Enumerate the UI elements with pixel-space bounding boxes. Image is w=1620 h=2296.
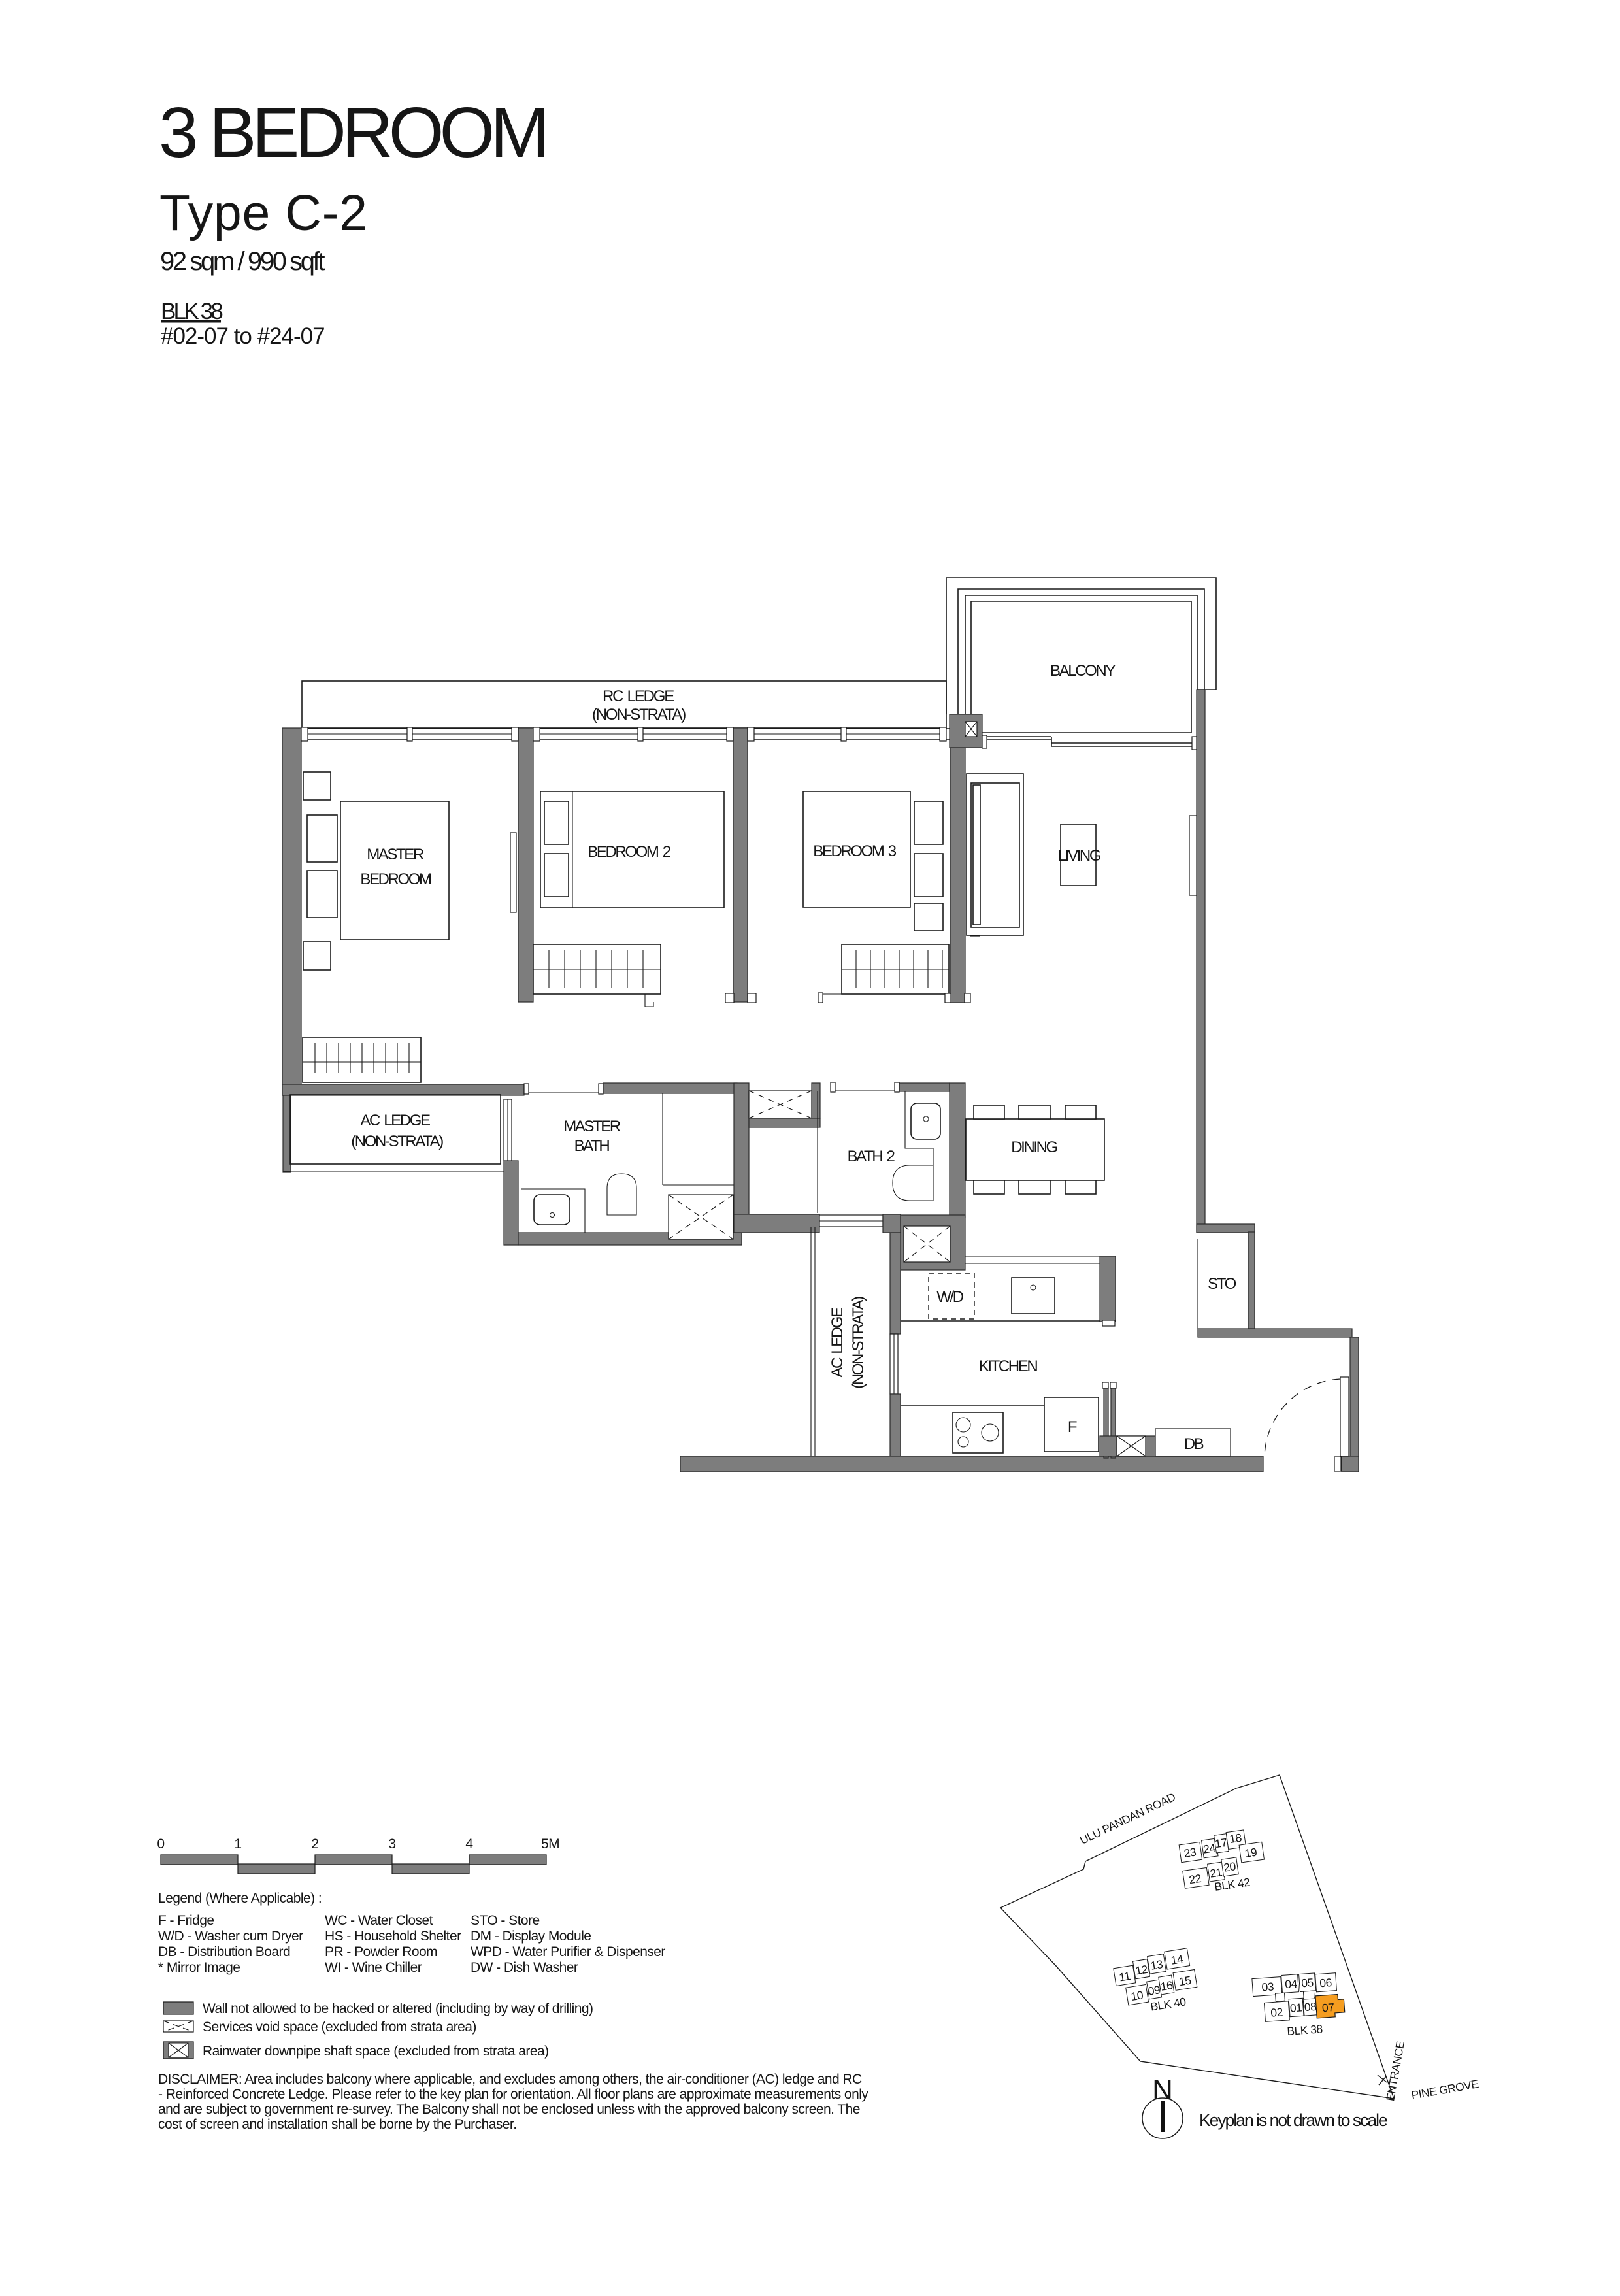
svg-text:2: 2 [311, 1837, 318, 1852]
svg-text:- Reinforced Concrete Ledge. P: - Reinforced Concrete Ledge. Please refe… [158, 2087, 868, 2102]
svg-text:05: 05 [1301, 1976, 1314, 1989]
svg-text:02: 02 [1270, 2005, 1283, 2019]
svg-text:Keyplan is not drawn to scale: Keyplan is not drawn to scale [1199, 2110, 1387, 2130]
svg-text:WPD - Water Purifier & Dispens: WPD - Water Purifier & Dispenser [471, 1944, 665, 1959]
svg-text:DB - Distribution Board: DB - Distribution Board [158, 1944, 290, 1959]
svg-text:Services void space (excluded: Services void space (excluded from strat… [203, 2020, 476, 2035]
svg-text:AC LEDGE: AC LEDGE [829, 1308, 846, 1378]
svg-text:11: 11 [1118, 1969, 1131, 1984]
svg-text:WC - Water Closet: WC - Water Closet [325, 1913, 433, 1928]
svg-text:AC LEDGE: AC LEDGE [360, 1112, 430, 1129]
svg-text:KITCHEN: KITCHEN [979, 1357, 1038, 1375]
svg-text:4: 4 [465, 1837, 473, 1852]
svg-text:DB: DB [1184, 1435, 1204, 1453]
svg-text:LIVING: LIVING [1058, 847, 1100, 865]
svg-text:15: 15 [1178, 1974, 1191, 1989]
svg-text:BEDROOM: BEDROOM [360, 871, 431, 888]
svg-text:(NON-STRATA): (NON-STRATA) [351, 1133, 443, 1150]
svg-text:Wall not allowed to be hacked: Wall not allowed to be hacked or altered… [203, 2001, 593, 2016]
svg-text:BATH 2: BATH 2 [848, 1148, 895, 1165]
svg-text:* Mirror Image: * Mirror Image [158, 1960, 240, 1975]
svg-text:21: 21 [1209, 1865, 1223, 1880]
svg-text:09: 09 [1147, 1983, 1161, 1998]
svg-text:BLK 38: BLK 38 [161, 299, 222, 324]
svg-text:23: 23 [1183, 1846, 1197, 1860]
svg-text:(NON-STRATA): (NON-STRATA) [592, 706, 686, 724]
svg-text:MASTER: MASTER [563, 1118, 621, 1135]
svg-text:Rainwater downpipe shaft space: Rainwater downpipe shaft space (excluded… [203, 2044, 549, 2059]
svg-text:08: 08 [1304, 2000, 1317, 2014]
svg-text:3: 3 [388, 1837, 395, 1852]
svg-text:RC LEDGE: RC LEDGE [603, 688, 674, 705]
svg-text:WI - Wine Chiller: WI - Wine Chiller [325, 1960, 422, 1975]
svg-text:HS - Household Shelter: HS - Household Shelter [325, 1929, 461, 1944]
svg-text:F - Fridge: F - Fridge [158, 1913, 214, 1928]
svg-text:(NON-STRATA): (NON-STRATA) [850, 1297, 867, 1389]
svg-text:07: 07 [1321, 2001, 1334, 2014]
svg-text:22: 22 [1188, 1872, 1202, 1886]
svg-text:92 sqm / 990 sqft: 92 sqm / 990 sqft [160, 247, 325, 276]
svg-text:Legend (Where Applicable) :: Legend (Where Applicable) : [158, 1891, 322, 1906]
svg-text:DISCLAIMER: Area includes balc: DISCLAIMER: Area includes balcony where … [158, 2072, 862, 2087]
svg-text:19: 19 [1244, 1846, 1257, 1860]
svg-text:DINING: DINING [1011, 1139, 1057, 1156]
svg-text:#02-07 to #24-07: #02-07 to #24-07 [161, 324, 325, 349]
svg-text:F: F [1068, 1418, 1077, 1436]
svg-text:BEDROOM 3: BEDROOM 3 [813, 842, 896, 860]
svg-text:cost of screen and installatio: cost of screen and installation shall be… [158, 2117, 516, 2132]
svg-text:06: 06 [1319, 1976, 1332, 1989]
svg-text:BLK 38: BLK 38 [1287, 2022, 1323, 2038]
svg-text:16: 16 [1159, 1978, 1173, 1993]
svg-text:04: 04 [1285, 1977, 1298, 1991]
svg-text:18: 18 [1229, 1831, 1242, 1846]
svg-text:PR - Powder Room: PR - Powder Room [325, 1944, 437, 1959]
svg-text:1: 1 [234, 1837, 241, 1852]
svg-text:MASTER: MASTER [367, 846, 424, 863]
svg-text:STO - Store: STO - Store [471, 1913, 540, 1928]
svg-text:W/D: W/D [936, 1288, 964, 1306]
svg-text:BALCONY: BALCONY [1050, 662, 1116, 680]
svg-text:DM - Display Module: DM - Display Module [471, 1929, 591, 1944]
svg-text:3 BEDROOM: 3 BEDROOM [159, 93, 545, 173]
svg-text:12: 12 [1134, 1963, 1148, 1978]
svg-text:17: 17 [1214, 1836, 1228, 1850]
svg-text:W/D - Washer cum Dryer: W/D - Washer cum Dryer [158, 1929, 303, 1944]
svg-text:BEDROOM 2: BEDROOM 2 [587, 843, 670, 861]
svg-text:and are subject to government: and are subject to government re-survey.… [158, 2102, 860, 2117]
svg-text:03: 03 [1261, 1980, 1274, 1993]
svg-text:5M: 5M [541, 1837, 559, 1852]
svg-text:N: N [1152, 2074, 1173, 2106]
svg-text:01: 01 [1289, 2001, 1302, 2014]
svg-text:13: 13 [1149, 1957, 1163, 1972]
svg-text:20: 20 [1223, 1859, 1237, 1874]
svg-text:Type C-2: Type C-2 [159, 185, 368, 241]
svg-text:0: 0 [157, 1837, 164, 1852]
svg-text:STO: STO [1208, 1275, 1236, 1293]
svg-text:DW - Dish Washer: DW - Dish Washer [471, 1960, 578, 1975]
svg-text:BATH: BATH [574, 1137, 610, 1155]
